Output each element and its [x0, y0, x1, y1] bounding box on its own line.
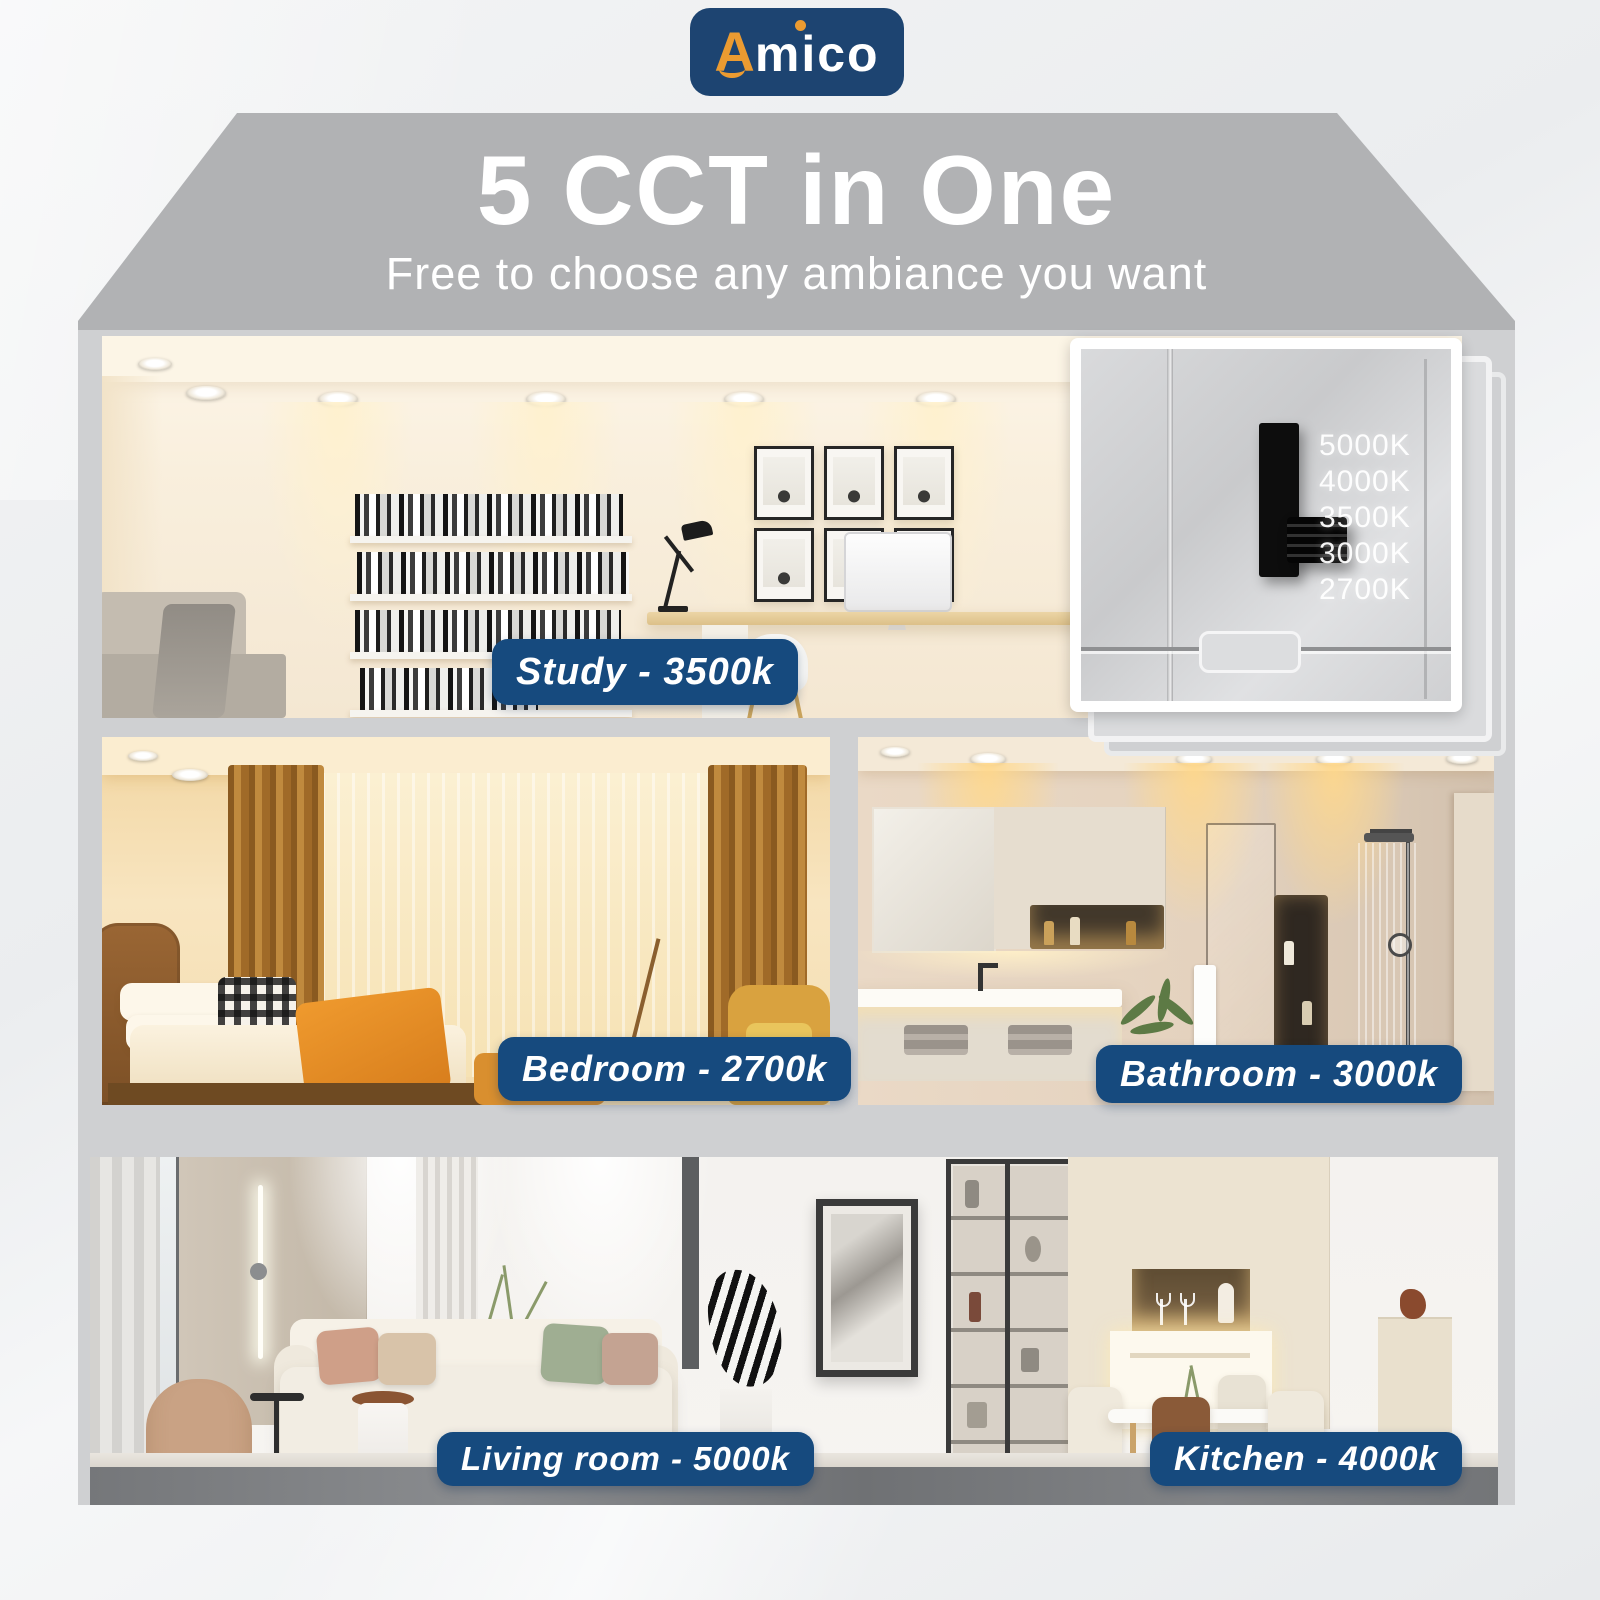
plant-leaf: [1129, 1019, 1174, 1036]
cabinet-object: [965, 1180, 979, 1208]
faucet-spout: [978, 963, 998, 968]
display-cabinet: [946, 1159, 1078, 1471]
wine-glass: [1156, 1293, 1171, 1307]
sculpture: [1400, 1289, 1426, 1319]
bookshelf-row: [357, 552, 629, 594]
bookshelf-row: [355, 494, 623, 536]
mounting-clip: [1199, 631, 1301, 673]
backlit-niche: [1030, 905, 1164, 949]
cct-option-3000k: 3000K: [1319, 537, 1449, 570]
cct-switch-inset: 5000K 4000K 3500K 3000K 2700K: [1070, 338, 1462, 712]
recessed-light: [138, 358, 172, 370]
cabinet-object: [1021, 1348, 1039, 1372]
picture-frame: [894, 446, 954, 520]
brand-logo: A mico: [690, 8, 904, 96]
zebra-sculpture: [702, 1265, 788, 1392]
room-label-bathroom: Bathroom - 3000k: [1096, 1045, 1462, 1103]
hanging-towel: [1194, 965, 1216, 1047]
towel-stack: [1008, 1025, 1072, 1055]
vanity-counter: [858, 989, 1122, 1007]
under-cabinet-glow: [858, 951, 1168, 977]
cabinet-object: [969, 1292, 981, 1322]
room-label-living-room: Living room - 5000k: [437, 1432, 814, 1486]
shelf-board: [350, 594, 632, 601]
cct-option-2700k: 2700K: [1319, 573, 1449, 606]
bottle: [1126, 921, 1136, 945]
picture-frame: [824, 446, 884, 520]
cct-option-3500k: 3500K: [1319, 501, 1449, 534]
cct-option-5000k: 5000K: [1319, 429, 1449, 462]
desktop-computer: [844, 532, 952, 612]
bottle: [1044, 921, 1054, 945]
page-subtitle: Free to choose any ambiance you want: [78, 248, 1515, 300]
room-label-kitchen: Kitchen - 4000k: [1150, 1432, 1462, 1486]
side-table: [250, 1393, 304, 1401]
pillow: [540, 1323, 610, 1385]
picture-frame: [754, 446, 814, 520]
wall-knob: [250, 1263, 267, 1280]
switch-closeup-photo: 5000K 4000K 3500K 3000K 2700K: [1081, 349, 1451, 701]
framed-art: [816, 1199, 918, 1377]
handheld-shower: [1388, 933, 1412, 957]
bottle: [1302, 1001, 1312, 1025]
water-spray: [1358, 843, 1420, 1067]
throw-blanket: [152, 604, 236, 718]
page-title: 5 CCT in One: [78, 134, 1515, 247]
vanity-cabinet: [858, 1007, 1122, 1081]
utensil-rail: [1130, 1353, 1250, 1358]
picture-frame: [754, 528, 814, 602]
bottle: [1284, 941, 1294, 965]
recessed-light: [172, 769, 208, 781]
shower-head: [1364, 833, 1414, 842]
bed-frame: [108, 1083, 500, 1105]
ad-canvas: 5 CCT in One Free to choose any ambiance…: [0, 0, 1600, 1600]
towel-stack: [904, 1025, 968, 1055]
recessed-light: [128, 751, 158, 761]
bottle: [1070, 917, 1080, 945]
shelf-board: [350, 536, 632, 543]
recessed-light: [880, 747, 910, 757]
cabinet-object: [967, 1402, 987, 1428]
mirror: [872, 807, 996, 953]
cabinet-object: [1025, 1236, 1041, 1262]
shelf-board: [350, 710, 632, 717]
cct-option-4000k: 4000K: [1319, 465, 1449, 498]
brand-letters-rest: mico: [755, 29, 880, 79]
pillow: [602, 1333, 658, 1385]
room-label-study: Study - 3500k: [492, 639, 798, 705]
recessed-light: [186, 386, 226, 400]
wall-pillar: [1454, 793, 1494, 1091]
dark-wall-trim: [682, 1157, 699, 1369]
brand-wordmark: A mico: [714, 24, 879, 80]
wine-glass: [1180, 1293, 1195, 1307]
room-label-bedroom: Bedroom - 2700k: [498, 1037, 851, 1101]
vase: [1218, 1283, 1234, 1323]
pillow: [378, 1333, 436, 1385]
dining-chair: [1218, 1375, 1266, 1439]
cct-option-list: 5000K 4000K 3500K 3000K 2700K: [1319, 429, 1449, 606]
pillow: [316, 1326, 382, 1385]
